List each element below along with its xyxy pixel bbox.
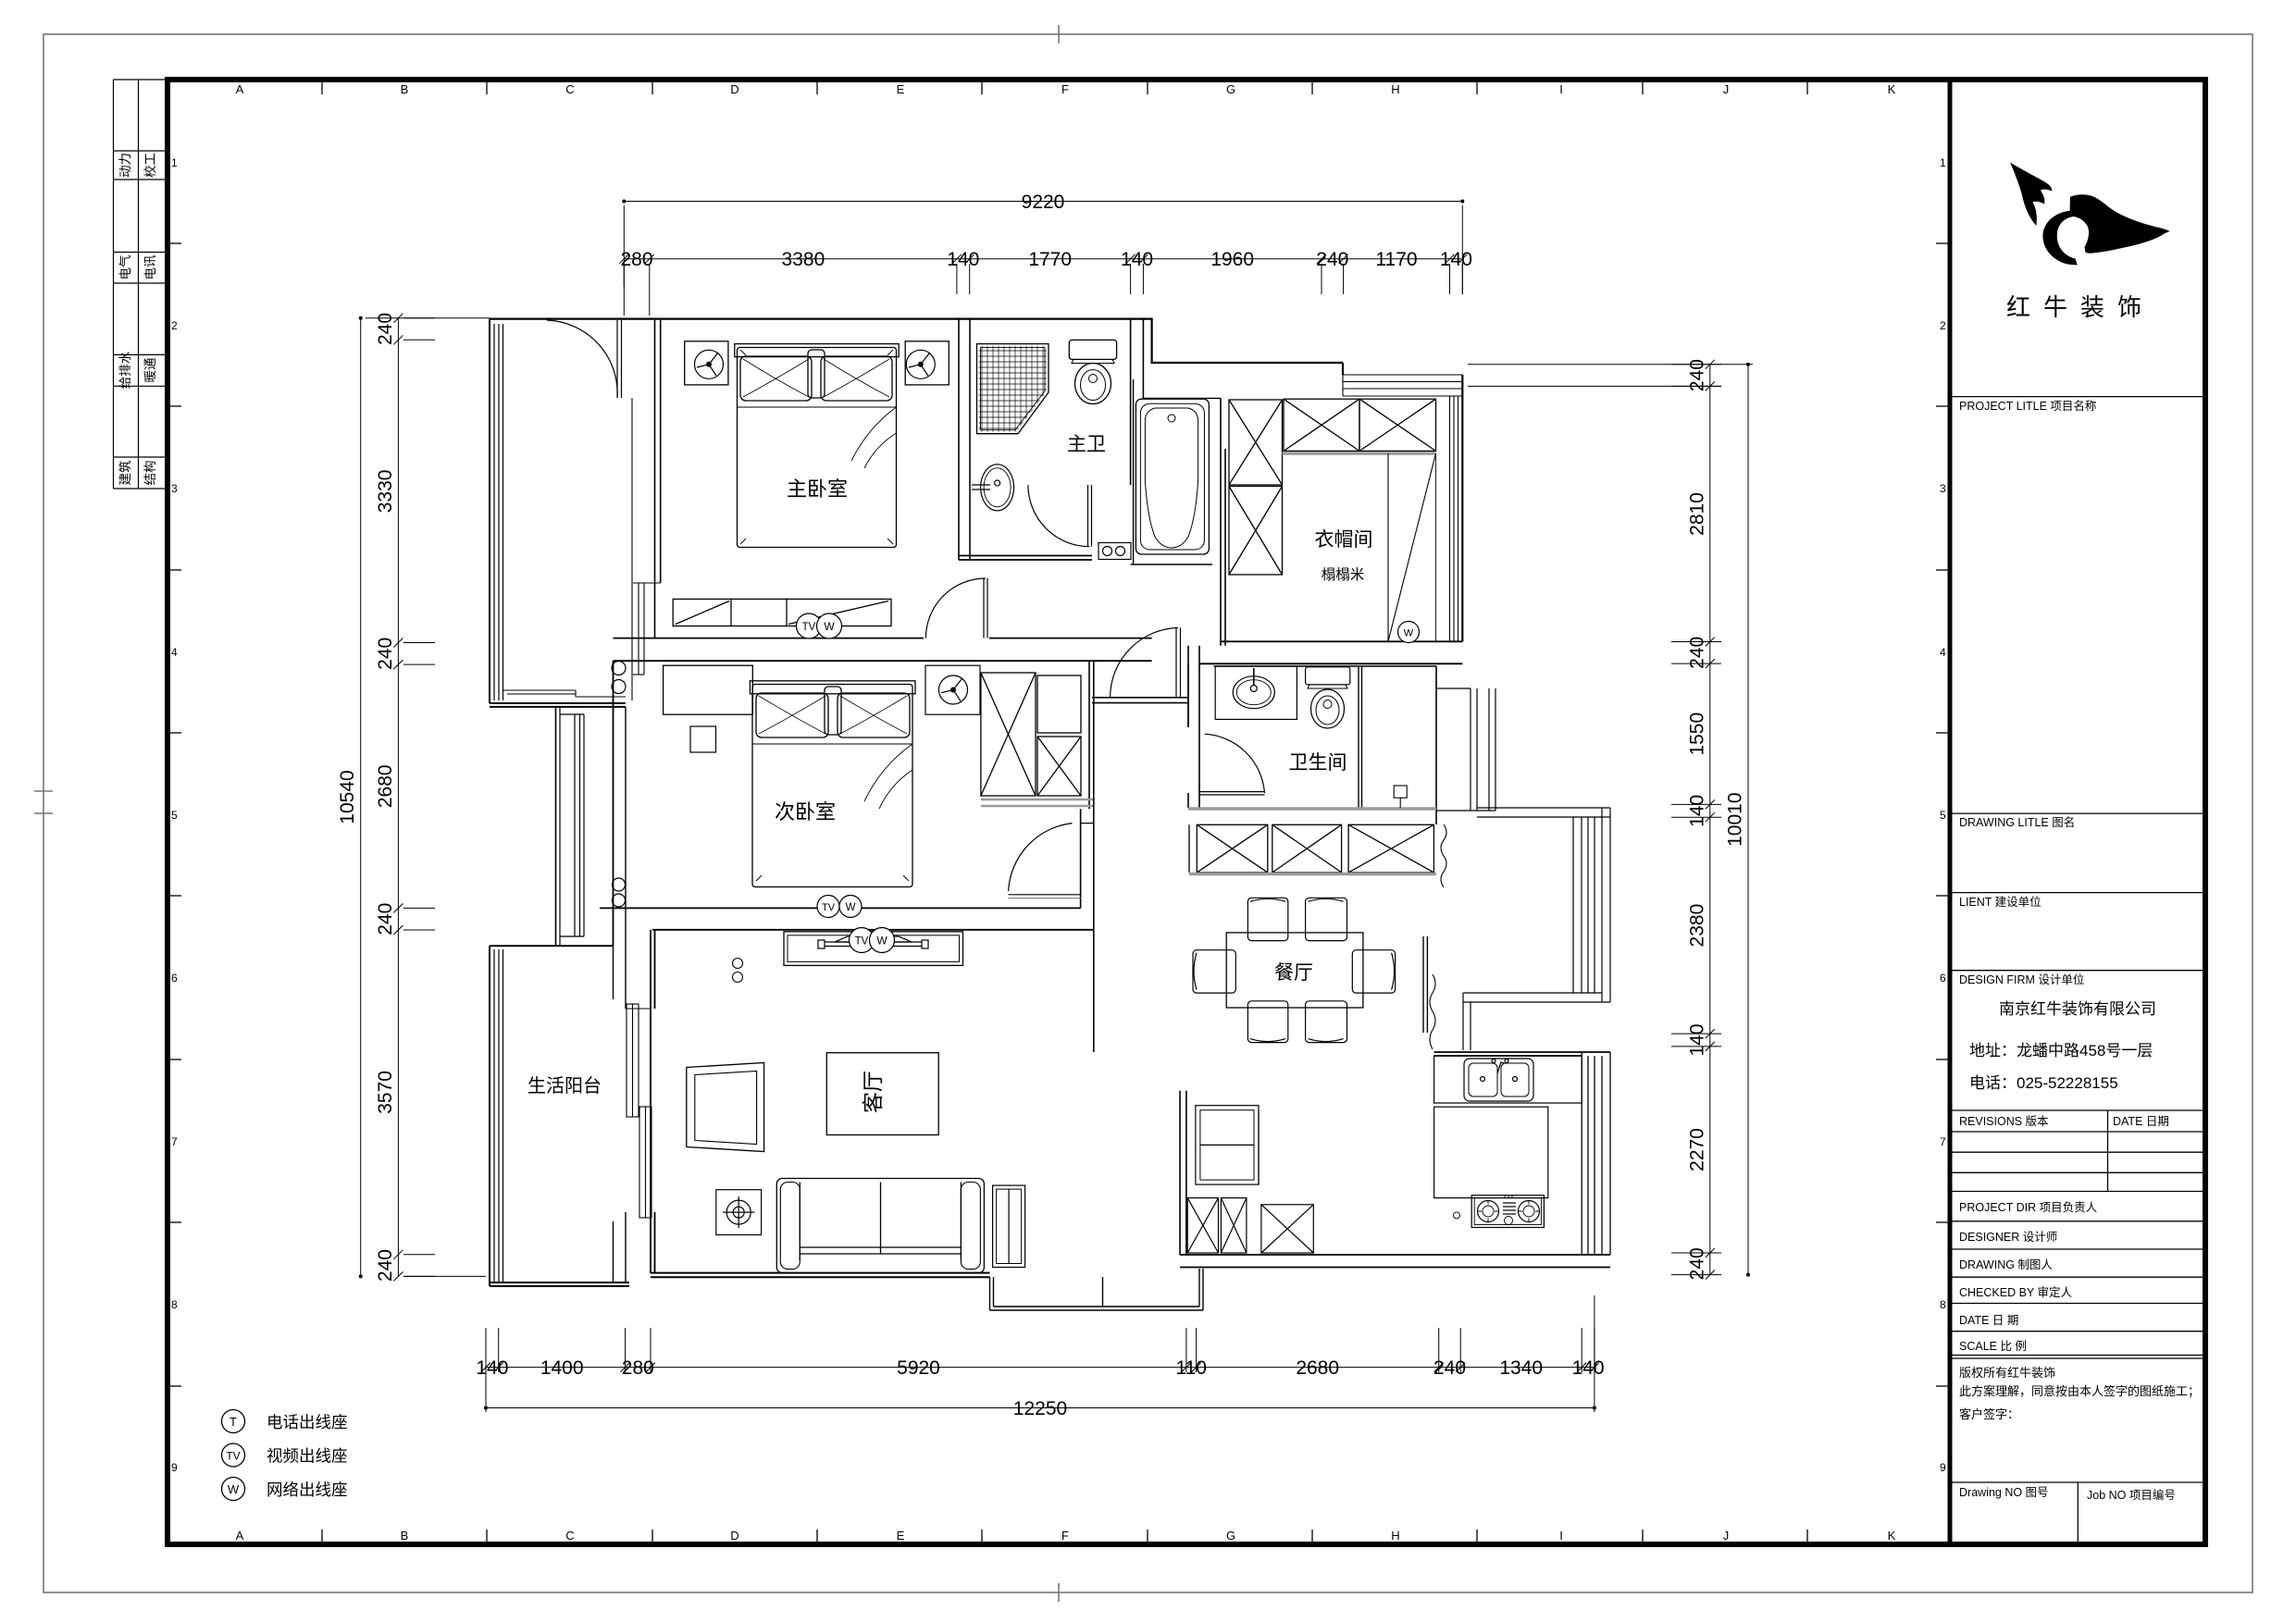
svg-text:红牛装饰: 红牛装饰 (2006, 294, 2154, 321)
svg-text:5: 5 (171, 809, 178, 822)
svg-text:280: 280 (620, 249, 652, 270)
svg-text:2270: 2270 (1687, 1128, 1708, 1171)
svg-text:8: 8 (171, 1298, 178, 1311)
svg-text:2: 2 (171, 319, 178, 332)
svg-text:W: W (824, 620, 835, 633)
svg-text:LIENT 建设单位: LIENT 建设单位 (1959, 895, 2042, 909)
svg-text:140: 140 (1121, 249, 1153, 270)
svg-text:版权所有红牛装饰: 版权所有红牛装饰 (1959, 1366, 2055, 1380)
svg-text:榻榻米: 榻榻米 (1322, 566, 1365, 583)
svg-text:南京红牛装饰有限公司: 南京红牛装饰有限公司 (1999, 1000, 2156, 1018)
svg-text:客厅: 客厅 (861, 1071, 885, 1113)
svg-text:4: 4 (1940, 646, 1946, 659)
svg-text:240: 240 (1433, 1357, 1466, 1379)
svg-text:12250: 12250 (1013, 1398, 1067, 1419)
svg-text:3570: 3570 (375, 1071, 396, 1114)
svg-text:240: 240 (1687, 1247, 1708, 1280)
svg-text:140: 140 (947, 249, 979, 270)
svg-text:240: 240 (1687, 637, 1708, 669)
svg-text:3330: 3330 (375, 470, 396, 514)
svg-text:E: E (897, 82, 905, 96)
svg-text:Drawing NO 图号: Drawing NO 图号 (1959, 1486, 2049, 1499)
svg-text:卫生间: 卫生间 (1289, 752, 1347, 774)
svg-text:C: C (565, 1529, 574, 1542)
svg-text:C: C (565, 82, 574, 96)
svg-text:生活阳台: 生活阳台 (527, 1075, 602, 1096)
svg-text:4: 4 (171, 646, 178, 659)
svg-text:电话出线座: 电话出线座 (267, 1413, 348, 1431)
svg-text:1340: 1340 (1499, 1357, 1543, 1379)
svg-text:10540: 10540 (337, 770, 358, 824)
svg-text:电讯: 电讯 (143, 254, 157, 279)
svg-text:REVISIONS 版本: REVISIONS 版本 (1959, 1115, 2049, 1128)
svg-text:K: K (1888, 1529, 1896, 1542)
svg-text:E: E (897, 1529, 905, 1542)
svg-text:240: 240 (375, 903, 396, 935)
svg-text:240: 240 (375, 313, 396, 345)
svg-text:9: 9 (1940, 1461, 1946, 1474)
svg-text:DESIGNER 设计师: DESIGNER 设计师 (1959, 1230, 2057, 1244)
svg-text:1960: 1960 (1210, 249, 1254, 270)
svg-text:140: 140 (476, 1357, 508, 1379)
svg-text:F: F (1061, 1529, 1069, 1542)
svg-text:140: 140 (1687, 1023, 1708, 1056)
svg-text:6: 6 (1940, 972, 1946, 985)
svg-text:3380: 3380 (782, 249, 825, 270)
svg-text:9220: 9220 (1022, 192, 1065, 213)
svg-text:6: 6 (171, 972, 178, 985)
svg-text:W: W (228, 1482, 240, 1496)
svg-text:7: 7 (1940, 1135, 1946, 1148)
svg-text:1770: 1770 (1028, 249, 1072, 270)
svg-text:PROJECT DIR 项目负责人: PROJECT DIR 项目负责人 (1959, 1201, 2098, 1214)
svg-text:Job NO 项目编号: Job NO 项目编号 (2087, 1488, 2176, 1502)
svg-text:240: 240 (1316, 249, 1348, 270)
svg-text:J: J (1723, 1529, 1730, 1542)
svg-text:W: W (846, 902, 856, 913)
svg-text:校工: 校工 (143, 153, 157, 178)
svg-text:视频出线座: 视频出线座 (267, 1447, 348, 1466)
svg-text:1170: 1170 (1375, 249, 1417, 270)
svg-text:10010: 10010 (1725, 792, 1746, 846)
svg-text:衣帽间: 衣帽间 (1315, 529, 1373, 551)
svg-text:280: 280 (622, 1357, 654, 1379)
svg-text:3: 3 (1940, 482, 1946, 495)
svg-text:电气: 电气 (118, 255, 132, 280)
svg-text:建筑: 建筑 (118, 460, 132, 485)
svg-text:240: 240 (375, 638, 396, 670)
svg-text:此方案理解，同意按由本人签字的图纸施工；: 此方案理解，同意按由本人签字的图纸施工； (1959, 1384, 2200, 1399)
svg-text:H: H (1391, 1529, 1399, 1542)
svg-text:D: D (730, 82, 738, 96)
svg-text:2680: 2680 (1296, 1357, 1339, 1379)
svg-text:暖通: 暖通 (143, 357, 157, 382)
svg-text:G: G (1226, 1529, 1235, 1542)
svg-text:H: H (1391, 82, 1399, 96)
svg-text:240: 240 (375, 1249, 396, 1282)
svg-text:次卧室: 次卧室 (775, 800, 836, 824)
svg-text:2680: 2680 (375, 764, 396, 808)
svg-text:地址：龙蟠中路458号一层: 地址：龙蟠中路458号一层 (1969, 1042, 2153, 1059)
svg-text:TV: TV (855, 936, 869, 948)
svg-text:B: B (401, 82, 409, 96)
svg-text:电话：025-52228155: 电话：025-52228155 (1969, 1074, 2118, 1092)
svg-text:I: I (1559, 82, 1563, 96)
svg-text:140: 140 (1572, 1357, 1605, 1379)
svg-text:DATE 日 期: DATE 日 期 (1959, 1314, 2018, 1327)
svg-text:餐厅: 餐厅 (1274, 962, 1313, 984)
svg-text:I: I (1559, 1529, 1563, 1542)
svg-text:140: 140 (1687, 795, 1708, 827)
svg-text:J: J (1723, 82, 1730, 96)
svg-text:PROJECT LITLE 项目名称: PROJECT LITLE 项目名称 (1959, 399, 2096, 413)
svg-text:1550: 1550 (1687, 712, 1708, 756)
svg-text:1400: 1400 (540, 1357, 584, 1379)
svg-text:F: F (1061, 82, 1069, 96)
svg-text:D: D (730, 1529, 738, 1542)
svg-text:主卧室: 主卧室 (787, 477, 848, 501)
svg-text:TV: TV (802, 622, 816, 633)
svg-text:3: 3 (171, 482, 178, 495)
svg-text:TV: TV (226, 1450, 240, 1463)
svg-text:网络出线座: 网络出线座 (267, 1481, 348, 1499)
svg-text:W: W (876, 935, 887, 948)
svg-text:110: 110 (1175, 1357, 1206, 1379)
svg-text:9: 9 (171, 1461, 178, 1474)
svg-text:2380: 2380 (1687, 904, 1708, 948)
svg-text:240: 240 (1687, 359, 1708, 391)
svg-text:8: 8 (1940, 1298, 1946, 1311)
svg-text:2810: 2810 (1687, 492, 1708, 536)
svg-text:W: W (1404, 628, 1414, 639)
svg-text:CHECKED BY 审定人: CHECKED BY 审定人 (1959, 1285, 2073, 1299)
svg-text:7: 7 (171, 1135, 178, 1148)
svg-text:B: B (401, 1529, 409, 1542)
svg-text:T: T (230, 1415, 237, 1429)
svg-text:主卫: 主卫 (1067, 434, 1106, 455)
svg-text:DRAWING 制图人: DRAWING 制图人 (1959, 1258, 2053, 1271)
svg-text:客户签字：: 客户签字： (1959, 1407, 2019, 1421)
svg-text:A: A (236, 1529, 244, 1542)
svg-text:K: K (1888, 82, 1896, 96)
svg-text:2: 2 (1940, 319, 1946, 332)
svg-text:DESIGN FIRM 设计单位: DESIGN FIRM 设计单位 (1959, 973, 2084, 986)
svg-text:1: 1 (171, 156, 178, 169)
svg-text:5920: 5920 (897, 1357, 940, 1379)
svg-text:1: 1 (1940, 156, 1946, 169)
svg-text:动力: 动力 (118, 153, 132, 178)
svg-text:140: 140 (1440, 249, 1472, 270)
svg-text:A: A (236, 82, 244, 96)
svg-text:TV: TV (822, 902, 836, 913)
svg-text:给排水: 给排水 (118, 351, 132, 389)
svg-text:5: 5 (1940, 809, 1946, 822)
svg-text:SCALE 比 例: SCALE 比 例 (1959, 1340, 2027, 1353)
svg-text:DATE 日期: DATE 日期 (2113, 1115, 2169, 1128)
svg-text:DRAWING LITLE 图名: DRAWING LITLE 图名 (1959, 815, 2075, 829)
svg-text:结构: 结构 (143, 461, 157, 486)
svg-text:G: G (1226, 82, 1235, 96)
